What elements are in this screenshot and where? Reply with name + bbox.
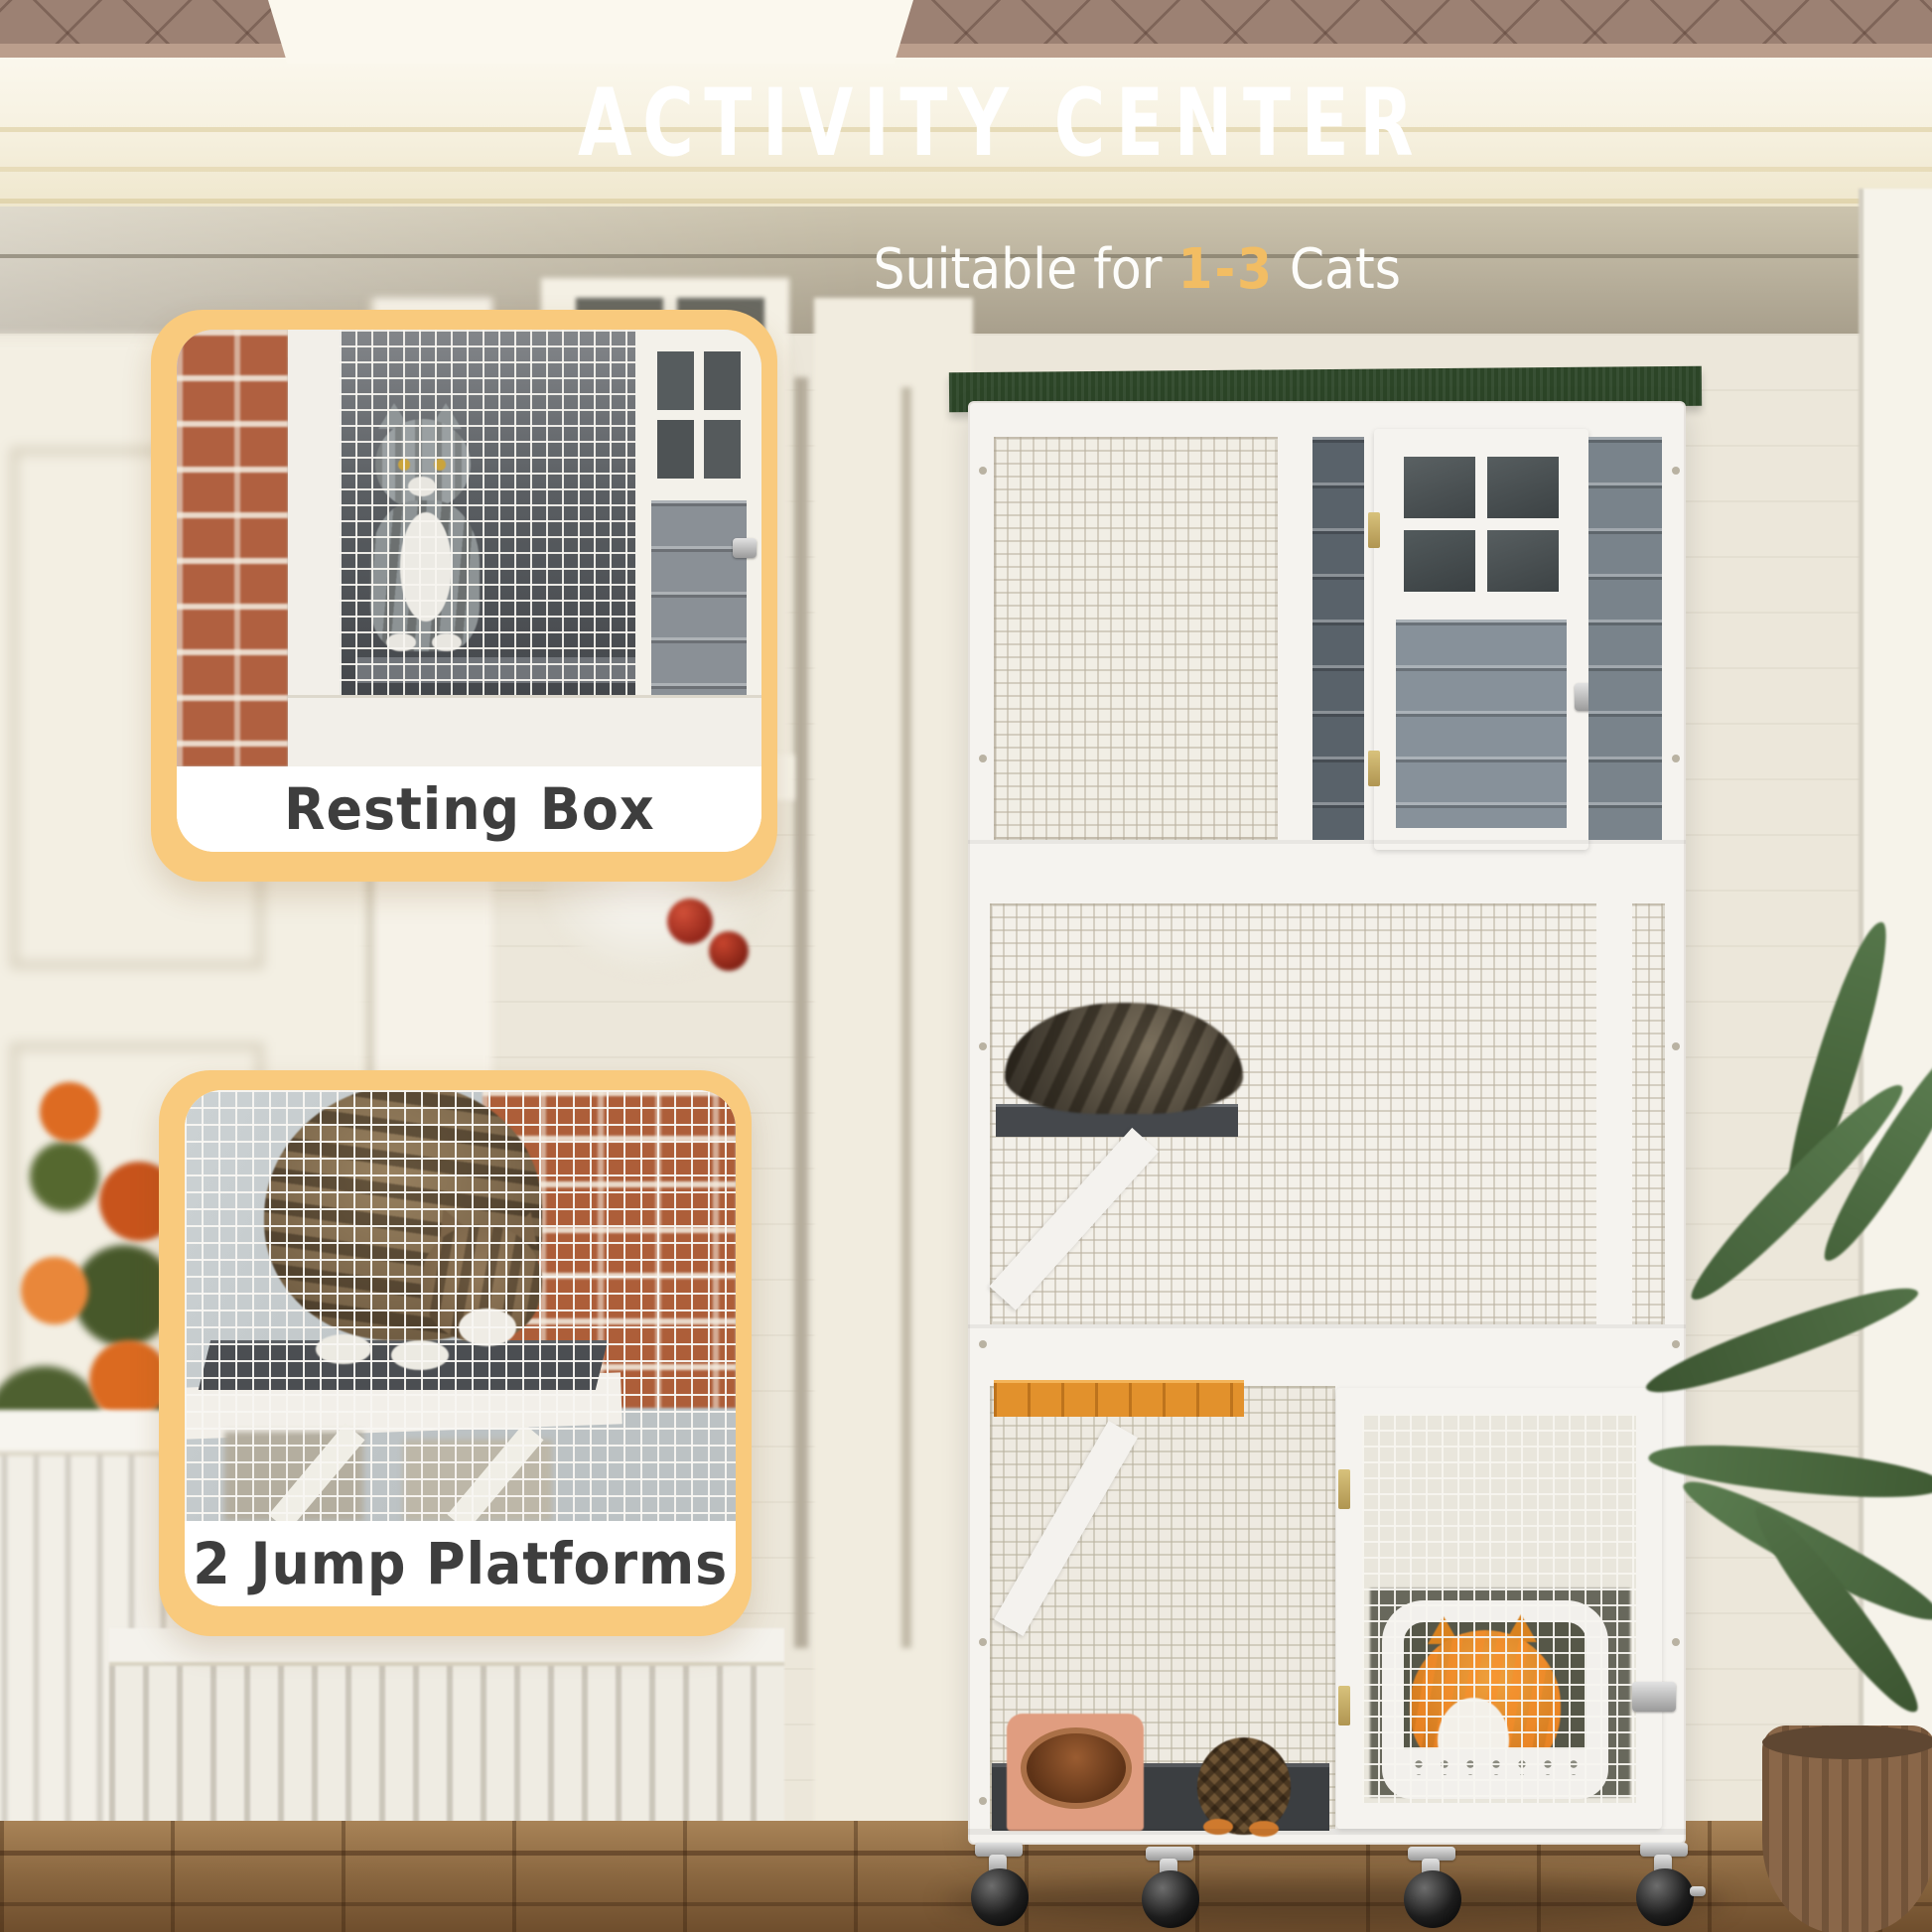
caster-wheel <box>1142 1870 1199 1928</box>
pot-rim <box>1762 1725 1932 1759</box>
marigold-blooms <box>40 1082 99 1142</box>
jump-platform-orange <box>994 1380 1244 1417</box>
porch-post <box>814 298 973 1847</box>
door-hinge <box>1338 1469 1350 1509</box>
caster-wheel <box>971 1868 1029 1926</box>
subtitle-line: Suitable for 1-3 Cats <box>874 236 1402 303</box>
brick-column <box>177 330 288 766</box>
caster-wheel-unit <box>1402 1847 1471 1932</box>
door-latch <box>1632 1682 1676 1712</box>
headline-title-text: ACTIVITY CENTER <box>578 75 1424 174</box>
base-line <box>968 1829 1686 1835</box>
cage-mesh <box>185 1090 736 1521</box>
caster-wheel-unit <box>1140 1847 1209 1932</box>
window-pane <box>704 420 741 479</box>
window-pane <box>1487 530 1559 592</box>
mini-door-panel <box>651 500 747 703</box>
tier-divider <box>968 840 1686 844</box>
fascia-peak <box>268 0 913 64</box>
door-shadow-line <box>794 377 808 1648</box>
grey-shingle-strip <box>1312 437 1364 840</box>
caster-wheel <box>1404 1870 1461 1928</box>
callout-card-inner: Resting Box <box>177 330 761 852</box>
callout-card-resting-box: Resting Box <box>151 310 777 882</box>
subtitle-prefix: Suitable for <box>874 237 1178 302</box>
callout-label-text: Resting Box <box>284 775 654 843</box>
caster-wheel-unit <box>969 1843 1038 1932</box>
mini-door-latch <box>733 538 757 558</box>
callout-label: Resting Box <box>177 766 761 852</box>
apple <box>709 931 749 971</box>
window-pane <box>657 351 694 410</box>
door-hinge <box>1338 1686 1350 1725</box>
callout-label-text: 2 Jump Platforms <box>193 1530 728 1597</box>
plant-pot <box>1762 1725 1932 1932</box>
molding-line <box>0 199 1932 204</box>
door-interior <box>1362 1414 1636 1803</box>
headline-title: ACTIVITY CENTER <box>0 75 1932 174</box>
callout-card-jump-platforms: 2 Jump Platforms <box>159 1070 752 1636</box>
subtitle-suffix: Cats <box>1274 237 1401 302</box>
caster-brake <box>1690 1886 1706 1896</box>
cage-bottom-bar <box>288 695 761 766</box>
resting-box-door <box>1374 429 1588 850</box>
mini-door-frame <box>635 330 761 731</box>
bottom-door <box>1336 1388 1662 1829</box>
window-pane <box>1487 457 1559 518</box>
caster-wheel <box>1636 1868 1694 1926</box>
grey-shingle-strip <box>1588 437 1662 840</box>
apple <box>667 898 713 944</box>
middle-post <box>1596 903 1632 1324</box>
callout-label: 2 Jump Platforms <box>185 1521 736 1606</box>
door-mesh <box>1362 1414 1636 1803</box>
food-bowl <box>1021 1727 1132 1809</box>
product-marketing-image: Resting Box <box>0 0 1932 1932</box>
jump-platforms-photo <box>185 1090 736 1521</box>
window-pane <box>1404 457 1475 518</box>
window-pane <box>1404 530 1475 592</box>
catio-floor-shadow <box>943 1878 1727 1924</box>
headline-subtitle: Suitable for 1-3 Cats <box>844 236 1420 303</box>
marigold-leaves <box>30 1142 99 1211</box>
door-window <box>1396 449 1567 600</box>
frame-screws <box>979 467 987 475</box>
caster-wheel-unit <box>1634 1843 1704 1932</box>
resting-box-photo <box>177 330 761 766</box>
mini-door-window <box>651 345 747 484</box>
subtitle-highlight: 1-3 <box>1177 237 1273 302</box>
window-pane <box>704 351 741 410</box>
tier-divider <box>968 1324 1686 1328</box>
door-hinge <box>1368 512 1380 548</box>
top-mesh-panel <box>994 437 1278 840</box>
callout-card-inner: 2 Jump Platforms <box>185 1090 736 1606</box>
cage-mesh <box>340 330 643 695</box>
door-shadow-line <box>901 387 911 1648</box>
window-pane <box>657 420 694 479</box>
door-hinge <box>1368 751 1380 786</box>
door-lower-panel <box>1396 620 1567 828</box>
pinecone-toy <box>1197 1737 1291 1835</box>
